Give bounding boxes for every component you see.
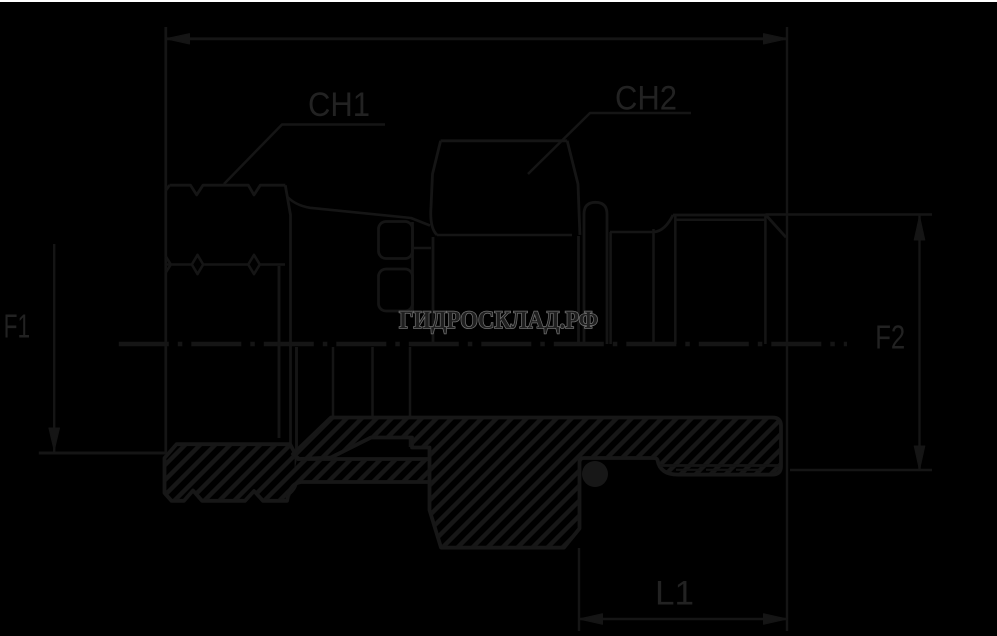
svg-text:F1: F1 [4, 309, 31, 346]
svg-text:CH1: CH1 [308, 86, 370, 124]
svg-text:ГИДРОСКЛАД.РФ: ГИДРОСКЛАД.РФ [399, 307, 598, 334]
svg-text:CH2: CH2 [615, 80, 677, 118]
svg-text:L1: L1 [655, 575, 694, 613]
svg-text:F2: F2 [875, 320, 905, 357]
